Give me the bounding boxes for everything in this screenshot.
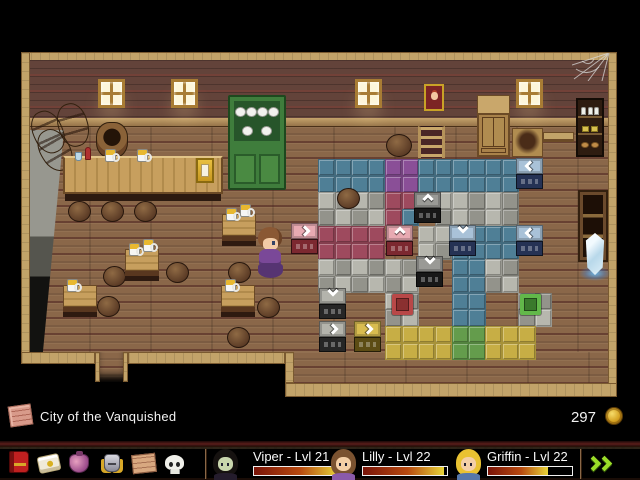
exit-passage-floor[interactable] [100, 352, 123, 382]
room-wall-bottom-right [285, 383, 617, 397]
menu-bar: Viper - Lvl 21 Lilly - Lvl 22 Griffin - … [0, 446, 640, 480]
crate-top [416, 256, 443, 272]
puzzle-tile-blue [452, 159, 469, 176]
crate-top [319, 288, 346, 304]
wine-bottle [85, 147, 91, 160]
puzzle-tile-crimson [351, 226, 368, 243]
puzzle-tile-stone-light [502, 276, 519, 293]
portrait-figure [431, 92, 438, 100]
puzzle-tile-blue [418, 176, 435, 193]
puzzle-tile-blue [435, 159, 452, 176]
puzzle-tile-stone-light [485, 192, 502, 209]
puzzle-tile-stone-light [318, 192, 335, 209]
crate-body [386, 241, 413, 256]
puzzle-tile-crimson [318, 226, 335, 243]
crate-slots [296, 244, 313, 249]
puzzle-tile-stone-dark [385, 276, 402, 293]
stool [103, 266, 126, 287]
plate [246, 107, 257, 117]
game-screen: City of the Vanquished 297 Viper - Lvl 2… [0, 0, 640, 480]
puzzle-tile-blue [468, 276, 485, 293]
window [171, 79, 198, 108]
wardrobe-top [478, 96, 509, 115]
map-button[interactable] [132, 450, 156, 476]
wardrobe [477, 95, 510, 157]
journal-icon [9, 451, 29, 473]
wardrobe-drawer [481, 148, 506, 153]
items-bag-icon [69, 454, 89, 473]
puzzle-tile-blue [351, 159, 368, 176]
beer-mug [137, 149, 148, 162]
puzzle-tile-green [452, 343, 469, 360]
stool [97, 296, 120, 317]
crate-slots [521, 179, 538, 184]
push-crate-gray-down[interactable] [319, 288, 346, 319]
push-crate-blue-left[interactable] [516, 158, 543, 189]
window [98, 79, 125, 108]
game-map [0, 0, 640, 445]
gold-amount: 297 [571, 409, 596, 426]
beer-mug [129, 243, 140, 256]
puzzle-tile-yellow [485, 326, 502, 343]
player-skirt [258, 263, 283, 278]
crate-body [516, 241, 543, 256]
puzzle-tile-purple [385, 159, 402, 176]
puzzle-button-red[interactable] [392, 294, 413, 315]
shelf-row [578, 141, 602, 149]
next-party-button[interactable] [588, 455, 618, 473]
puzzle-tile-stone-dark [351, 209, 368, 226]
crate-slots [324, 309, 341, 314]
puzzle-tile-blue [452, 259, 469, 276]
push-crate-gray-right[interactable] [319, 321, 346, 352]
arrow-right-icon [299, 225, 310, 236]
journal-button[interactable] [8, 450, 32, 476]
puzzle-tile-yellow [435, 326, 452, 343]
puzzle-tile-stone-dark [335, 259, 352, 276]
room-wall-left [21, 52, 30, 364]
bench [543, 132, 574, 142]
puzzle-tile-yellow [502, 343, 519, 360]
puzzle-tile-blue [368, 176, 385, 193]
arrow-left-icon [524, 160, 535, 171]
hp-fill [363, 467, 444, 475]
room-wall-bottom-mid [128, 352, 285, 364]
window [516, 79, 543, 108]
stool [257, 297, 280, 318]
window [355, 79, 382, 108]
push-crate-blue-down[interactable] [449, 225, 476, 256]
hp-bar-griffin [487, 466, 573, 476]
party-name-griffin: Griffin - Lvl 22 [487, 449, 568, 464]
plate [257, 107, 268, 117]
puzzle-tile-stone-dark [468, 209, 485, 226]
location-bar: City of the Vanquished 297 [0, 400, 640, 441]
puzzle-tile-yellow [435, 343, 452, 360]
arrow-down-icon [457, 222, 468, 233]
crate-top [319, 321, 346, 337]
arrow-down-icon [424, 253, 435, 264]
crate-body [354, 337, 381, 352]
pantry-shelf [576, 98, 604, 157]
crate-top [449, 225, 476, 241]
puzzle-tile-blue [435, 176, 452, 193]
puzzle-tile-blue [418, 159, 435, 176]
crate-slots [454, 246, 471, 251]
puzzle-tile-stone-light [351, 259, 368, 276]
crate-top [354, 321, 381, 337]
puzzle-tile-stone-light [385, 259, 402, 276]
scroll-button[interactable] [38, 450, 62, 476]
puzzle-tile-green [452, 326, 469, 343]
stool [68, 201, 91, 222]
crate-slots [324, 342, 341, 347]
puzzle-tile-blue [485, 226, 502, 243]
push-crate-black-up[interactable] [414, 192, 441, 223]
skull-button[interactable] [164, 450, 188, 476]
bar-counter [63, 156, 223, 202]
cabinet-shelf [234, 101, 280, 141]
push-crate-blue-left[interactable] [516, 225, 543, 256]
puzzle-tile-green [468, 343, 485, 360]
crate-top [386, 225, 413, 241]
stool [134, 201, 157, 222]
wall-portrait [424, 84, 444, 111]
puzzle-tile-green [468, 326, 485, 343]
shelf-row [578, 106, 602, 118]
puzzle-tile-blue [485, 159, 502, 176]
room-wall-step [285, 352, 294, 383]
puzzle-tile-stone-light [335, 209, 352, 226]
puzzle-tile-stone-light [368, 276, 385, 293]
puzzle-tile-blue [452, 176, 469, 193]
player-character[interactable] [255, 227, 285, 281]
stool [101, 201, 124, 222]
puzzle-tile-blue [468, 293, 485, 310]
beer-mug [105, 149, 116, 162]
arrow-right-icon [362, 323, 373, 334]
puzzle-tile-stone-light [485, 209, 502, 226]
portrait-eyes [339, 463, 341, 466]
menu-divider-right [580, 449, 581, 479]
portrait-body [457, 473, 480, 480]
gold-ledger [196, 158, 214, 183]
crate-body [319, 304, 346, 319]
shelf-row [578, 125, 602, 135]
beer-mug [143, 239, 154, 252]
push-crate-pink-up[interactable] [386, 225, 413, 256]
puzzle-tile-blue [335, 159, 352, 176]
push-crate-pink-right[interactable] [291, 223, 318, 254]
puzzle-tile-crimson [368, 243, 385, 260]
puzzle-tile-blue [318, 159, 335, 176]
equipment-icon [104, 454, 120, 472]
counter-shadow [65, 194, 221, 201]
green-cabinet [228, 95, 286, 190]
location-label: City of the Vanquished [40, 409, 176, 424]
arrow-up-icon [422, 193, 433, 204]
puzzle-tile-yellow [518, 326, 535, 343]
cabinet-door [234, 154, 256, 184]
hp-bar-lilly [362, 466, 448, 476]
puzzle-tile-blue [468, 309, 485, 326]
stool [166, 262, 189, 283]
plate [235, 107, 246, 117]
puzzle-button-green[interactable] [520, 294, 541, 315]
plate [261, 126, 272, 136]
hp-fill [488, 467, 548, 475]
puzzle-tile-crimson [351, 243, 368, 260]
cabinet-doors [234, 154, 280, 184]
beer-mug [225, 279, 236, 292]
arrow-up-icon [394, 226, 405, 237]
arrow-right-icon [327, 323, 338, 334]
plate [242, 126, 253, 136]
menu-divider-left [205, 449, 206, 479]
puzzle-tile-blue [318, 176, 335, 193]
bread [581, 142, 589, 148]
puzzle-tile-yellow [402, 326, 419, 343]
box [591, 126, 598, 132]
puzzle-tile-blue [468, 176, 485, 193]
puzzle-tile-stone-dark [502, 259, 519, 276]
puzzle-tile-crimson [385, 209, 402, 226]
puzzle-tile-yellow [502, 326, 519, 343]
equipment-button[interactable] [100, 450, 124, 476]
crate-body [416, 272, 443, 287]
puzzle-tile-stone-light [485, 259, 502, 276]
party-portrait-lilly[interactable] [330, 449, 357, 480]
stool [337, 188, 360, 209]
crate-top [414, 192, 441, 208]
arrow-down-icon [327, 285, 338, 296]
chevron-right-icon [597, 456, 613, 472]
broken-table [512, 128, 543, 157]
stool [227, 327, 250, 348]
crate-top [291, 223, 318, 239]
puzzle-tile-yellow [485, 343, 502, 360]
scroll-icon [36, 453, 61, 474]
spiderweb-icon [572, 53, 610, 81]
portrait-body [332, 473, 355, 480]
crate-body [291, 239, 318, 254]
exit-passage-post-right [123, 352, 128, 382]
round-table [386, 134, 412, 157]
beer-mug [240, 204, 251, 217]
plate [268, 107, 279, 117]
puzzle-tile-stone-dark [351, 276, 368, 293]
crate-top [516, 158, 543, 174]
crate-slots [421, 277, 438, 282]
puzzle-tile-crimson [318, 243, 335, 260]
puzzle-tile-blue [468, 159, 485, 176]
arrow-left-icon [524, 227, 535, 238]
puzzle-tile-stone-dark [468, 192, 485, 209]
puzzle-tile-crimson [385, 192, 402, 209]
items-bag-button[interactable] [68, 450, 92, 476]
map-scroll-icon [8, 404, 34, 428]
party-portrait-viper[interactable] [212, 449, 239, 480]
cabinet-door [259, 154, 281, 184]
puzzle-tile-crimson [335, 243, 352, 260]
puzzle-tile-blue [452, 276, 469, 293]
puzzle-tile-stone-dark [502, 192, 519, 209]
puzzle-tile-blue [452, 293, 469, 310]
beer-mug [226, 208, 237, 221]
jar [581, 107, 586, 115]
puzzle-tile-blue [452, 309, 469, 326]
puzzle-tile-purple [385, 176, 402, 193]
party-name-lilly: Lilly - Lvl 22 [362, 449, 431, 464]
puzzle-tile-stone-light [418, 226, 435, 243]
puzzle-tile-stone-dark [502, 209, 519, 226]
puzzle-tile-blue [485, 176, 502, 193]
room-wall-bottom-left [21, 352, 95, 364]
crate-slots [521, 246, 538, 251]
puzzle-tile-stone-dark [368, 192, 385, 209]
puzzle-tile-blue [485, 243, 502, 260]
party-portrait-griffin[interactable] [455, 449, 482, 480]
jar [588, 107, 593, 115]
puzzle-tile-yellow [402, 343, 419, 360]
puzzle-tile-yellow [385, 343, 402, 360]
puzzle-tile-stone-dark [368, 259, 385, 276]
puzzle-tile-yellow [418, 343, 435, 360]
crate-slots [391, 246, 408, 251]
puzzle-tile-yellow [418, 326, 435, 343]
map-icon [131, 453, 157, 474]
puzzle-tile-purple [402, 176, 419, 193]
crate-body [414, 208, 441, 223]
room-wall-right [608, 52, 617, 397]
hp-fill [254, 467, 338, 475]
portrait-eyes [221, 463, 223, 466]
hp-bar-viper [253, 466, 339, 476]
puzzle-tile-blue [368, 159, 385, 176]
crate-slots [359, 342, 376, 347]
party-name-viper: Viper - Lvl 21 [253, 449, 329, 464]
skull-icon [165, 455, 184, 470]
puzzle-tile-stone-light [318, 259, 335, 276]
portrait-eyes [464, 463, 466, 466]
puzzle-tile-blue [468, 259, 485, 276]
gold-coin-icon [605, 407, 623, 425]
player-eye [272, 241, 275, 245]
crate-body [319, 337, 346, 352]
crate-top [516, 225, 543, 241]
puzzle-tile-purple [402, 159, 419, 176]
puzzle-tile-stone-dark [318, 209, 335, 226]
puzzle-tile-stone-light [452, 192, 469, 209]
bread [591, 142, 599, 148]
push-crate-gold-right[interactable] [354, 321, 381, 352]
crate-body [449, 241, 476, 256]
puzzle-tile-crimson [368, 226, 385, 243]
jar [594, 107, 599, 115]
puzzle-tile-stone-light [368, 209, 385, 226]
box [582, 126, 589, 132]
push-crate-black-down[interactable] [416, 256, 443, 287]
wardrobe-door [493, 117, 505, 147]
puzzle-tile-yellow [518, 343, 535, 360]
puzzle-tile-crimson [335, 226, 352, 243]
crate-body [516, 174, 543, 189]
crate-slots [419, 213, 436, 218]
puzzle-tile-stone-dark [485, 276, 502, 293]
drinking-glass [75, 152, 82, 161]
puzzle-tile-yellow [385, 326, 402, 343]
beer-mug [67, 279, 78, 292]
exit-passage-post-left [95, 352, 100, 382]
portrait-body [214, 473, 237, 480]
ladder [418, 126, 445, 158]
